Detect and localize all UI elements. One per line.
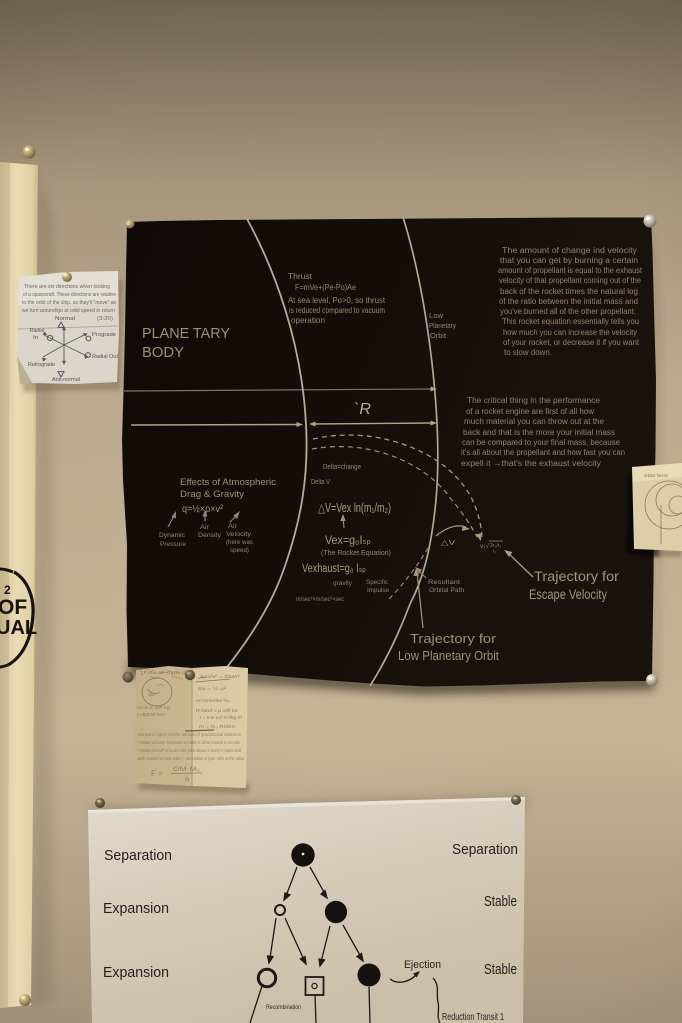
svg-text:can be compared to your final: can be compared to your final mass, beca…	[462, 438, 621, 447]
svg-text:"orbital period" of a circular: "orbital period" of a circular orbit abo…	[138, 748, 241, 753]
svg-text:Prograde: Prograde	[92, 332, 116, 338]
svg-text:much material you can throw ou: much material you can throw out at the	[464, 417, 605, 426]
svg-text:Radial Out: Radial Out	[92, 354, 119, 360]
svg-text:Retrograde: Retrograde	[28, 362, 55, 368]
svg-text:back of the rocket times the n: back of the rocket times the natural log	[500, 287, 638, 296]
svg-text:Pressure: Pressure	[160, 541, 186, 548]
svg-text:of a rocket engine are first o: of a rocket engine are first of all how	[466, 407, 594, 416]
svg-text:Specific: Specific	[366, 579, 389, 586]
svg-text:"orbital velocity" because an: "orbital velocity" because an orbit is w…	[138, 740, 240, 745]
svg-text:There are six directions when: There are six directions when looking	[24, 284, 110, 290]
svg-text:Dynamic: Dynamic	[159, 532, 186, 539]
svg-text:Radial: Radial	[30, 328, 44, 334]
svg-text:speed): speed)	[230, 547, 249, 554]
svg-text:v₁√: v₁√	[480, 542, 489, 550]
svg-text:Drag & Gravity: Drag & Gravity	[180, 489, 244, 500]
svg-text:△V=Vex ln(m₁/m₂): △V=Vex ln(m₁/m₂)	[318, 501, 391, 515]
svg-text:of the ratio between the initi: of the ratio between the initial mass an…	[499, 297, 638, 306]
svg-text:F =: F =	[151, 769, 163, 778]
svg-text:Effects of Atmospheric: Effects of Atmospheric	[180, 477, 276, 488]
svg-text:In: In	[33, 335, 38, 341]
svg-text:of your rocket, or decrease it: of your rocket, or decrease it if you wa…	[503, 338, 640, 347]
svg-text:(3:20): (3:20)	[97, 316, 113, 322]
svg-text:Δv = ½·μ²: Δv = ½·μ²	[198, 685, 227, 691]
svg-text:Archimedes ⅒: Archimedes ⅒	[196, 698, 231, 703]
svg-text:you've burned all of the other: you've burned all of the other propellan…	[500, 307, 636, 316]
svg-text:OF: OF	[0, 596, 27, 619]
svg-text:it's all about the propellant: it's all about the propellant and how fa…	[461, 448, 625, 457]
svg-text:Recombination: Recombination	[266, 1004, 301, 1011]
svg-text:r=6378 km: r=6378 km	[137, 712, 165, 717]
svg-text:At sea level, Po>0, so thrust: At sea level, Po>0, so thrust	[288, 296, 386, 305]
svg-text:Ejection: Ejection	[404, 959, 441, 971]
svg-text:of a spacecraft. These directi: of a spacecraft. These directions are re…	[23, 292, 116, 298]
svg-text:Anti-normal: Anti-normal	[52, 377, 80, 383]
svg-text:BODY: BODY	[142, 344, 184, 361]
svg-text:amount of propellant is equal: amount of propellant is equal to the exh…	[498, 266, 643, 275]
svg-text:(The Rocket Equation): (The Rocket Equation)	[321, 550, 391, 557]
svg-text:R-land ≈ μ will be: R-land ≈ μ will be	[196, 708, 239, 713]
svg-text:Escape Velocity: Escape Velocity	[529, 587, 607, 602]
svg-text:r₂: r₂	[493, 549, 497, 555]
svg-text:This rocket equation essential: This rocket equation essentially tells y…	[502, 317, 639, 326]
svg-text:Stable: Stable	[484, 962, 517, 978]
svg-text:(here was: (here was	[226, 539, 254, 546]
svg-text:velocity of that propellant co: velocity of that propellant coming out o…	[499, 276, 641, 285]
svg-text:Vex=g₀Iₛₚ: Vex=g₀Iₛₚ	[325, 535, 371, 547]
svg-text:Stable: Stable	[484, 894, 517, 910]
svg-text:gravity: gravity	[333, 580, 353, 587]
svg-text:Velocity: Velocity	[226, 531, 252, 538]
svg-text:The amount of change ind velo: The amount of change ind velocity	[502, 246, 637, 255]
svg-text:wanted to figure out the amoun: wanted to figure out the amount of gravi…	[138, 732, 241, 737]
svg-text:q=½×ρ×v²: q=½×ρ×v²	[182, 503, 223, 515]
svg-text:expell it →that's the exhaust: expell it →that's the exhaust velocity	[461, 459, 601, 468]
svg-text:Expansion: Expansion	[103, 901, 169, 917]
svg-text:how much you can increase the: how much you can increase the velocity	[503, 328, 637, 337]
svg-text:Low: Low	[429, 311, 444, 320]
svg-text:m/sec²×m/sec²×sec: m/sec²×m/sec²×sec	[296, 596, 345, 603]
svg-text:Density: Density	[198, 532, 222, 539]
svg-text:that you can get by burning a: that you can get by burning a certain	[500, 256, 638, 265]
svg-text:F=mVe+(Pe-Po)Ae: F=mVe+(Pe-Po)Ae	[295, 283, 356, 292]
svg-text:Thrust: Thrust	[288, 272, 313, 281]
svg-text:Orbit: Orbit	[430, 331, 446, 340]
svg-text:Planetary: Planetary	[429, 321, 456, 330]
svg-text:orbital forces: orbital forces	[644, 473, 669, 478]
svg-text:back and that is the more your: back and that is the more your initial m…	[463, 428, 615, 437]
svg-text:△V: △V	[441, 538, 455, 547]
svg-text:Reduction Transit 1: Reduction Transit 1	[442, 1011, 504, 1023]
svg-text:Trajectory for: Trajectory for	[534, 569, 620, 584]
svg-text:to slow down.: to slow down.	[504, 348, 552, 357]
svg-text:Delta=change: Delta=change	[323, 462, 361, 471]
svg-text:with respect of your orbit — t: with respect of your orbit — the radius …	[138, 756, 244, 761]
svg-text:to the orbit of the ship, so t: to the orbit of the ship, so they'll "mo…	[22, 300, 116, 306]
svg-text:Impulse: Impulse	[367, 587, 389, 594]
svg-text:2: 2	[4, 583, 11, 597]
svg-text:GM·M₂: GM·M₂	[173, 766, 201, 773]
svg-text:Separation: Separation	[452, 842, 518, 858]
svg-text:·m = m₀ R/den: ·m = m₀ R/den	[197, 724, 236, 729]
svg-text:is reduced compared to vacuum: is reduced compared to vacuum	[289, 306, 385, 315]
svg-text:PLANE TARY: PLANE TARY	[142, 325, 230, 342]
svg-text:The critical thing in the perf: The critical thing in the performance	[467, 396, 601, 405]
svg-text:Normal: Normal	[55, 316, 75, 322]
svg-text:m=6.0·10² kg: m=6.0·10² kg	[137, 705, 171, 710]
svg-text:Low Planetary Orbit: Low Planetary Orbit	[398, 649, 499, 663]
svg-text:Air: Air	[228, 523, 238, 530]
svg-text:operation: operation	[291, 316, 325, 325]
svg-text:·r = 6.6·10³ m³/kg·s²: ·r = 6.6·10³ m³/kg·s²	[198, 715, 243, 720]
svg-text:Expansion: Expansion	[103, 965, 169, 981]
svg-text:Vexhaust=g₀ Iₛₚ: Vexhaust=g₀ Iₛₚ	[302, 563, 366, 575]
svg-text:`R: `R	[354, 401, 371, 418]
svg-text:Resultant: Resultant	[428, 579, 460, 586]
svg-text:Air: Air	[200, 524, 210, 531]
svg-text:R: R	[185, 777, 190, 784]
svg-text:Ωμ: Ωμ	[148, 692, 154, 697]
svg-text:Delta V: Delta V	[311, 477, 330, 486]
svg-text:Trajectory for: Trajectory for	[410, 632, 496, 646]
svg-text:Separation: Separation	[104, 848, 172, 864]
svg-text:Orbital Path: Orbital Path	[429, 587, 464, 594]
svg-text:we turn around/go at orbit spe: we turn around/go at orbit speed in retu…	[21, 308, 115, 314]
svg-text:Δac/v² = GM/r²: Δac/v² = GM/r²	[200, 674, 241, 679]
